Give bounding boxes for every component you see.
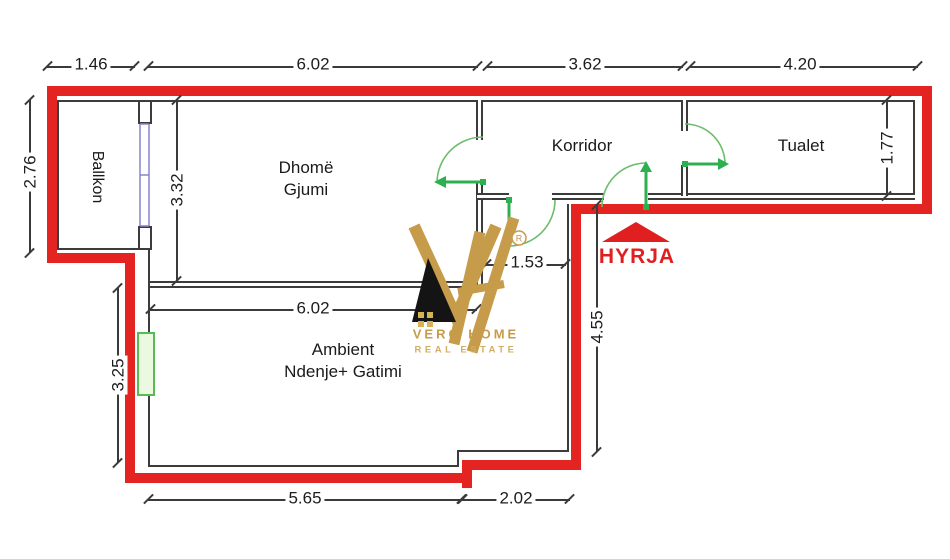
dim-top-4: 4.20 — [780, 55, 819, 74]
dim-toilet-height: 1.77 — [878, 128, 897, 167]
room-label-living-line2: Ndenje+ Gatimi — [284, 361, 402, 383]
dim-living-height: 3.25 — [109, 355, 128, 394]
room-label-living-line1: Ambient — [284, 339, 402, 361]
svg-text:R: R — [516, 234, 523, 244]
room-label-balcony: Ballkon — [86, 151, 108, 203]
room-label-bedroom: Dhomë Gjumi — [279, 157, 334, 201]
dim-bottom-1: 5.65 — [285, 489, 324, 508]
dim-living-width: 6.02 — [293, 299, 332, 318]
logo-brand-text: VERO HOME — [413, 327, 519, 342]
bedroom-door — [434, 137, 486, 188]
room-label-bedroom-line1: Dhomë — [279, 157, 334, 179]
dim-bottom-2: 2.02 — [496, 489, 535, 508]
entrance-label: HYRJA — [599, 245, 675, 269]
dim-top-3: 3.62 — [565, 55, 604, 74]
toilet-door — [682, 124, 729, 170]
registered-trademark-icon: R — [512, 231, 526, 245]
entrance-door — [602, 161, 652, 210]
dim-entry-wall: 4.55 — [588, 307, 607, 346]
dim-top-2: 6.02 — [293, 55, 332, 74]
room-label-toilet: Tualet — [778, 135, 825, 157]
floor-plan-canvas: 1.46 6.02 3.62 4.20 2.76 3.32 3.25 1.77 … — [0, 0, 950, 559]
dim-bedroom-height: 3.32 — [168, 170, 187, 209]
room-label-living: Ambient Ndenje+ Gatimi — [284, 339, 402, 383]
room-label-bedroom-line2: Gjumi — [279, 179, 334, 201]
dim-top-1: 1.46 — [71, 55, 110, 74]
balcony-window — [140, 124, 149, 226]
dim-balcony-height: 2.76 — [21, 152, 40, 191]
logo-tagline-text: REAL ESTATE — [415, 345, 518, 356]
room-label-corridor: Korridor — [552, 135, 612, 157]
entrance-arrow-icon — [602, 222, 670, 242]
